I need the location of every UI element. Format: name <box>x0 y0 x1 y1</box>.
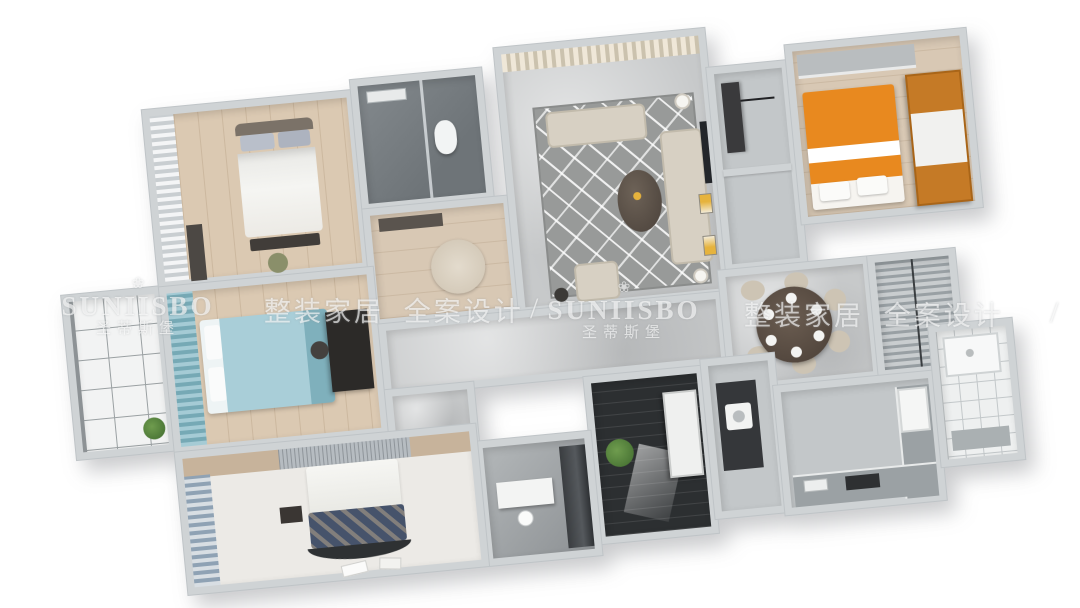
brand-name-cn: 圣蒂斯堡 <box>582 326 666 342</box>
room-bathroom-2 <box>928 318 1025 467</box>
refrigerator <box>897 386 931 433</box>
sink <box>803 478 828 492</box>
room-study <box>475 431 602 567</box>
watermark-separator: / <box>1050 296 1058 330</box>
room-utility <box>583 366 719 545</box>
white-chair <box>517 510 534 527</box>
room-kitchen <box>773 370 947 515</box>
brand-name-latin: SUNIISBO <box>547 296 700 324</box>
plant <box>142 416 166 440</box>
papers <box>341 560 369 578</box>
art-frame-yellow <box>702 235 717 256</box>
master-pouf <box>267 252 289 274</box>
kids-pillow <box>819 181 851 202</box>
room-bathroom-1 <box>350 67 494 211</box>
watermark-brand-center: ❀ SUNIISBO 圣蒂斯堡 <box>556 280 692 342</box>
nightstand <box>279 506 302 524</box>
master-duvet <box>237 147 323 238</box>
watermark-separator: / <box>530 292 538 326</box>
round-rug <box>429 237 488 296</box>
watermark-tagline: 整装家居 全案设计 <box>264 290 524 329</box>
kids-pillow <box>857 175 889 196</box>
master-window-curtain <box>149 114 189 282</box>
watermark-tagline: 整装家居 全案设计 <box>744 294 1004 333</box>
room-master-bedroom <box>142 90 370 289</box>
white-cabinet <box>662 389 704 478</box>
shower-glass-screen <box>419 80 433 198</box>
white-desk <box>496 478 554 509</box>
bath-vanity-counter <box>951 426 1011 451</box>
bedroom2-pillow <box>208 367 227 402</box>
plant <box>605 438 636 469</box>
room-laundry-hall <box>700 353 789 519</box>
bedroom3-curtain <box>184 474 221 587</box>
papers <box>379 557 401 569</box>
kids-wardrobe <box>905 70 973 207</box>
dark-wardrobe <box>559 444 595 548</box>
vanity-table <box>378 213 443 232</box>
master-pillow <box>277 129 310 148</box>
entry-console <box>721 82 746 153</box>
room-kids-bedroom <box>784 28 982 225</box>
toilet <box>433 119 458 155</box>
room-living <box>493 28 730 315</box>
master-dresser <box>186 224 207 281</box>
master-pillow <box>240 133 275 152</box>
bath-vanity <box>366 88 407 104</box>
kids-desk <box>796 44 916 79</box>
brand-name-latin: SUNIISBO <box>61 292 214 320</box>
brand-logo-icon: ❀ <box>132 276 145 292</box>
brand-logo-icon: ❀ <box>618 280 631 296</box>
bedroom2-pillow <box>204 325 223 360</box>
art-frame-yellow <box>698 193 713 214</box>
glass-shelf <box>740 96 774 101</box>
kids-bed-orange <box>802 84 905 210</box>
living-curtain-wall <box>501 36 700 73</box>
room-bedroom-3 <box>175 424 489 595</box>
brand-name-cn: 圣蒂斯堡 <box>96 322 180 338</box>
watermark-brand-left: ❀ SUNIISBO 圣蒂斯堡 <box>72 276 204 338</box>
floor-plan-render: ❀ SUNIISBO 圣蒂斯堡 整装家居 全案设计 / ❀ SUNIISBO 圣… <box>0 0 1080 608</box>
entry-divider-wall <box>723 163 791 176</box>
